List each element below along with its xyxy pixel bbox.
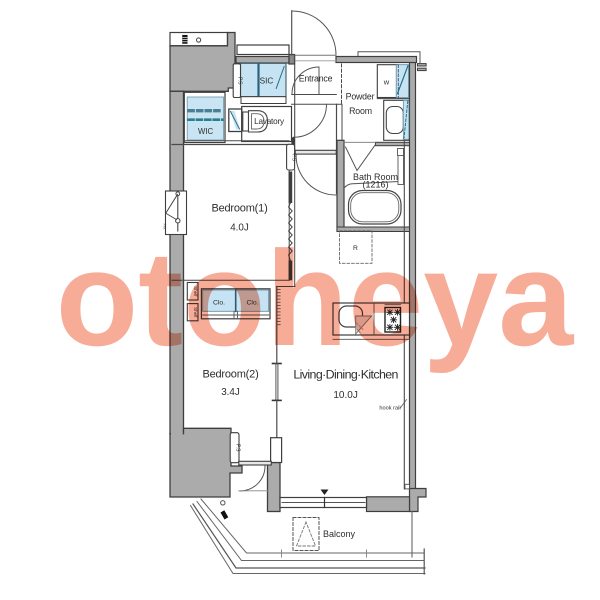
svg-text:Bedroom(1): Bedroom(1) [211,203,267,215]
svg-text:WIC: WIC [198,127,214,136]
svg-text:P.S: P.S [234,444,240,452]
svg-text:Entrance: Entrance [299,74,333,84]
svg-text:otoheya: otoheya [56,223,575,374]
svg-text:Room: Room [349,106,372,116]
svg-text:P.S: P.S [290,153,296,161]
svg-text:P.S: P.S [237,77,243,85]
svg-text:Balcony: Balcony [323,529,356,539]
svg-text:hook rail: hook rail [379,405,400,411]
svg-text:Powder: Powder [346,92,375,102]
svg-text:SIC: SIC [260,77,274,86]
svg-text:w: w [383,78,390,87]
svg-text:10.0J: 10.0J [333,390,357,401]
svg-text:3.4J: 3.4J [221,387,240,398]
svg-text:(1216): (1216) [362,180,388,190]
svg-text:Lavatory: Lavatory [254,117,285,126]
